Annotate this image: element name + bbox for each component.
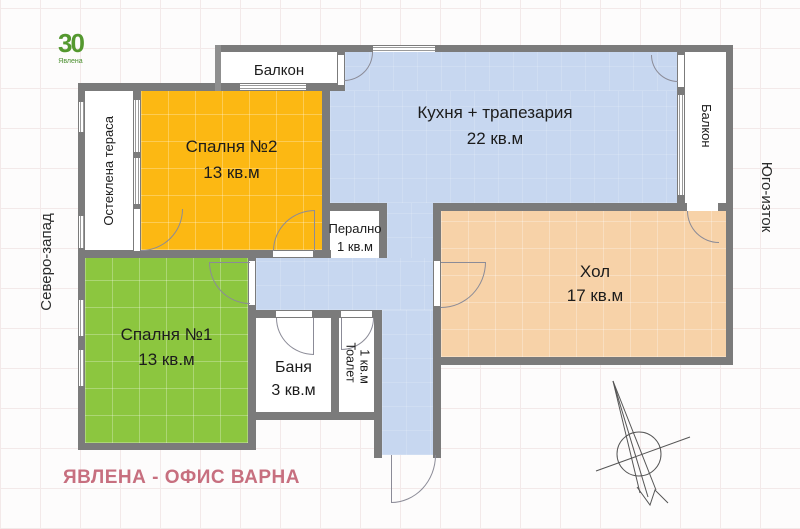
label-bedroom2-name: Спалня №2 (141, 137, 322, 157)
floor-plan: Балкон Кухня + трапезария 22 кв.м Спалня… (0, 0, 800, 529)
label-bedroom1-name: Спалня №1 (85, 325, 248, 345)
label-laundry-name: Перално (320, 221, 390, 237)
door-opening (687, 203, 718, 211)
room-living (441, 211, 726, 357)
door-opening (273, 251, 313, 257)
wall (322, 203, 387, 211)
door-opening (341, 311, 372, 317)
wall (78, 443, 256, 450)
window (240, 84, 306, 90)
window (134, 100, 140, 152)
door-opening (134, 209, 140, 251)
label-kitchen-name: Кухня + трапезария (345, 103, 645, 123)
wall (374, 310, 382, 458)
label-balcony-right: Балкон (698, 71, 714, 181)
window (79, 350, 84, 386)
label-terrace: Остеклена тераса (101, 96, 117, 246)
room-kitchen-upper (345, 52, 677, 91)
label-bedroom2-area: 13 кв.м (141, 163, 322, 183)
logo-sub-text: Явлена (58, 58, 83, 65)
label-southeast: Юго-изток (757, 122, 775, 272)
agency-logo: 30 Явлена (58, 30, 83, 65)
window (79, 300, 84, 336)
label-bedroom1-area: 13 кв.м (85, 350, 248, 370)
window (79, 102, 84, 132)
door-opening (434, 261, 440, 306)
label-toilet-name: Тоалет (343, 321, 358, 405)
label-toilet-area: 1 кв.м (357, 325, 372, 409)
label-bath-name: Баня (256, 358, 331, 377)
window (373, 46, 435, 52)
door-arc (391, 455, 436, 503)
wall (215, 45, 733, 52)
room-corridor (256, 258, 433, 310)
label-bath-area: 3 кв.м (256, 381, 331, 400)
logo-number: 30 (58, 30, 83, 56)
label-kitchen-area: 22 кв.м (345, 129, 645, 149)
window (79, 216, 84, 248)
window (678, 95, 684, 195)
wall (435, 203, 687, 211)
door-opening (678, 55, 684, 87)
label-balcony-top: Балкон (221, 62, 337, 80)
door-opening (276, 311, 312, 317)
wall (331, 318, 339, 412)
wall (433, 357, 733, 365)
wall (718, 203, 733, 211)
compass (580, 370, 710, 520)
wall (250, 412, 382, 420)
wall (433, 203, 441, 458)
room-entry-hall (382, 310, 433, 455)
label-northwest: Северо-запад (38, 177, 56, 347)
label-laundry-area: 1 кв.м (320, 239, 390, 255)
label-living-name: Хол (460, 262, 730, 282)
window (134, 158, 140, 204)
wall (78, 83, 85, 450)
agency-office-label: ЯВЛЕНА - ОФИС ВАРНА (63, 467, 300, 489)
label-living-area: 17 кв.м (460, 286, 730, 306)
